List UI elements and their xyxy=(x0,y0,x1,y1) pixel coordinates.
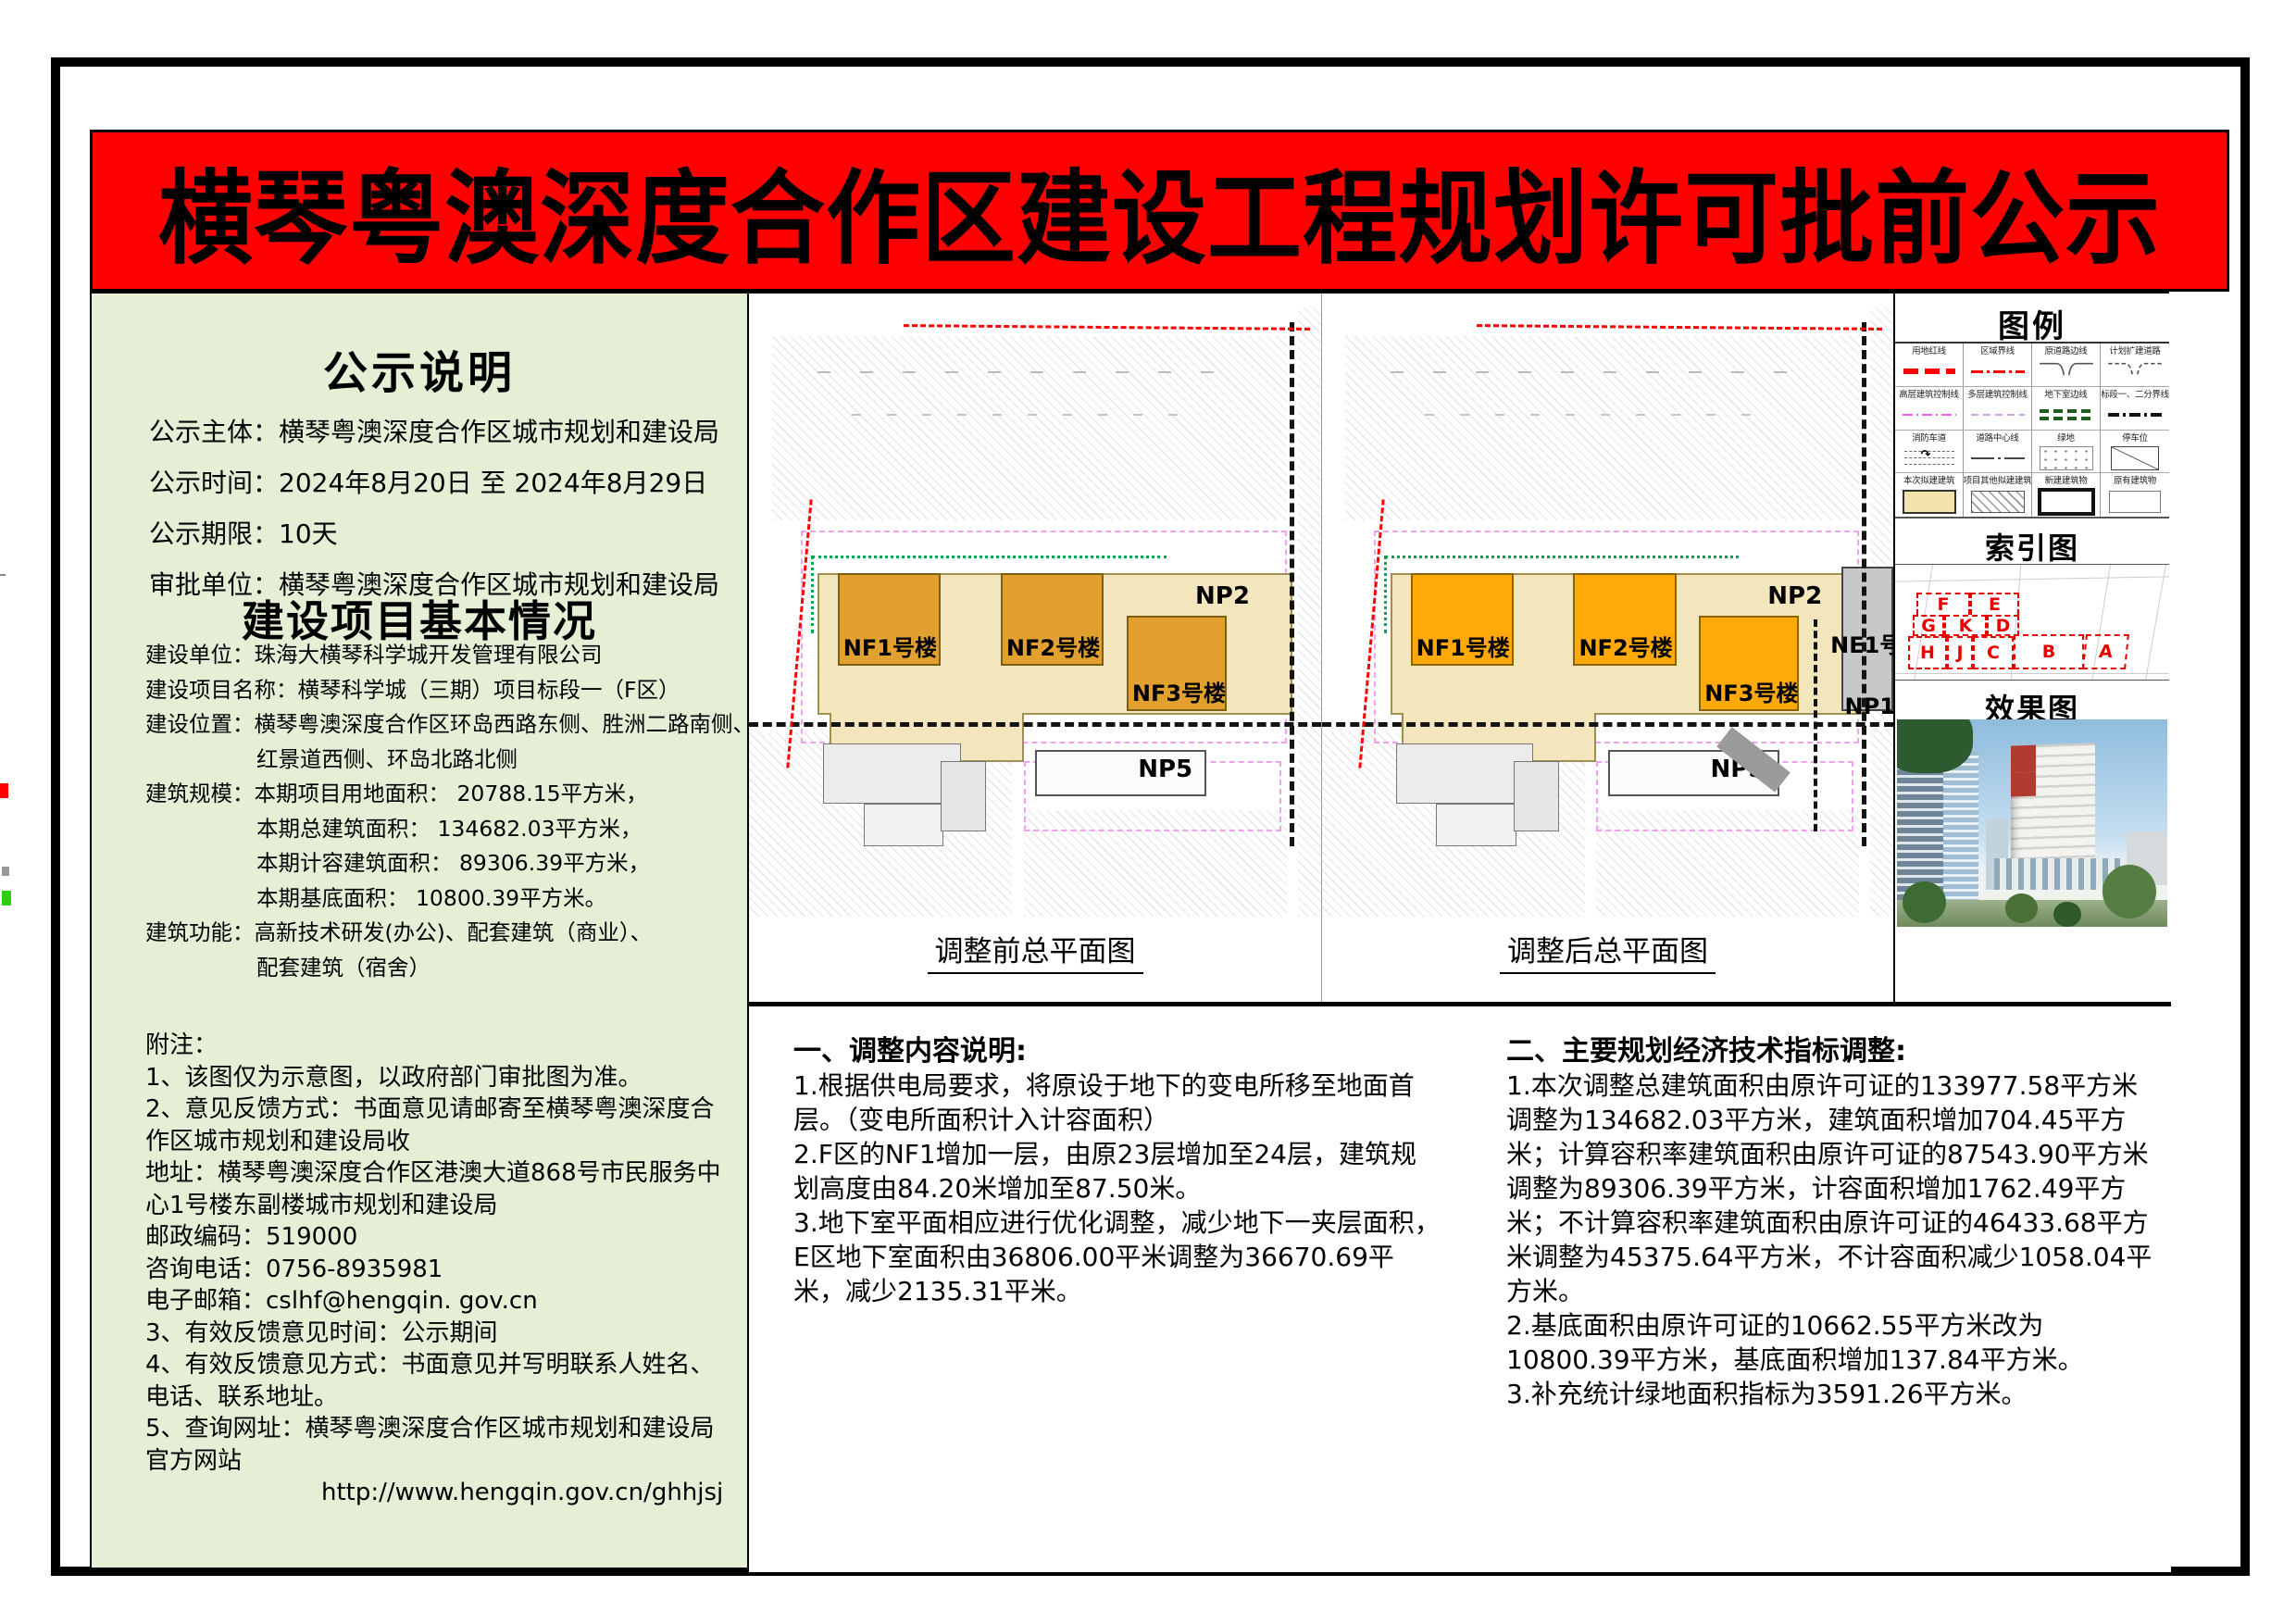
tower-label: NF1号楼 xyxy=(843,630,937,662)
magenta-dashdot-symbol xyxy=(1903,414,1956,417)
plan-caption-after: 调整后总平面图 xyxy=(1322,928,1893,969)
adjustment-paragraph: 3.地下室平面相应进行优化调整，减少地下一夹层面积，E区地下室面积由36806.… xyxy=(793,1206,1441,1308)
new-building-symbol xyxy=(2038,488,2095,516)
parcel-A: A xyxy=(2082,634,2129,669)
legend-item: 用地红线 xyxy=(1895,344,1964,387)
parcel-G: G xyxy=(1913,615,1944,636)
street-boundary-line xyxy=(1814,619,1817,832)
notice-row-value: 2024年8月20日 至 2024年8月29日 xyxy=(279,468,707,498)
render-red-accent xyxy=(2011,771,2036,796)
parcel-B: B xyxy=(2014,634,2084,669)
proposed-building-symbol xyxy=(1903,490,1956,514)
hatch-area xyxy=(772,336,1287,520)
project-line: 本期总建筑面积： 134682.03平方米， xyxy=(145,812,743,847)
existing-building xyxy=(864,804,944,846)
adjustment-paragraph: 1.根据供电局要求，将原设于地下的变电所移至地面首层。（变电所面积计入计容面积） xyxy=(793,1068,1441,1137)
other-proposed-symbol xyxy=(1971,491,2025,513)
footnote: 邮政编码：519000 xyxy=(145,1221,727,1254)
project-line: 建设项目名称：横琴科学城（三期）项目标段一（F区） xyxy=(145,673,743,708)
parcel-E: E xyxy=(1970,593,2019,615)
annotation-marks xyxy=(852,414,1195,416)
street-boundary-line xyxy=(1862,322,1866,846)
street-boundary-line xyxy=(749,722,1321,727)
legend-item: 标段一、二分界线 xyxy=(2101,387,2169,431)
render-photo xyxy=(1897,719,2167,927)
tower-label: NF1号楼 xyxy=(1416,630,1510,662)
render-red-accent xyxy=(2011,745,2036,773)
parcel-D: D xyxy=(1987,615,2019,636)
legend-item: 道路中心线 xyxy=(1964,431,2032,474)
notice-row-label: 公示时间： xyxy=(149,468,279,498)
site-plans: NF1号楼 NF2号楼 NF3号楼 NP2 NP5 调整前总平面图 xyxy=(749,294,1895,1002)
page-title: 横琴粤澳深度合作区建设工程规划许可批前公示 xyxy=(158,137,2161,284)
tower-nf1: NF1号楼 xyxy=(838,573,941,665)
scan-mark-red xyxy=(0,783,8,798)
footnote: 4、有效反馈意见方式：书面意见并写明联系人姓名、电话、联系地址。 xyxy=(145,1349,727,1413)
notice-section-title: 公示说明 xyxy=(92,336,747,401)
parcel-F: F xyxy=(1916,593,1970,615)
building-label-np2: NP2 xyxy=(1767,582,1822,610)
red-dashdot-symbol xyxy=(1971,370,2025,373)
parcel-J: J xyxy=(1947,636,1973,669)
existing-building xyxy=(1514,761,1559,832)
legend-item: 地下室边线 xyxy=(2032,387,2101,431)
project-line: 建设位置：横琴粤澳深度合作区环岛西路东侧、胜洲二路南侧、 xyxy=(145,707,743,743)
index-road xyxy=(1895,576,2169,581)
annotation-marks xyxy=(1391,371,1802,373)
project-line: 配套建筑（宿舍） xyxy=(145,951,743,986)
legend-title: 图例 xyxy=(1895,301,2169,346)
legend-item: 消防车道↷ xyxy=(1895,431,1964,474)
legend-item: 新建建筑物 xyxy=(2032,473,2101,517)
adjustment-notes: 一、调整内容说明: 1.根据供电局要求，将原设于地下的变电所移至地面首层。（变电… xyxy=(793,1034,1441,1308)
road-edge-symbol xyxy=(2040,361,2093,381)
legend-item: 多层建筑控制线 xyxy=(1964,387,2032,431)
notice-row: 公示期限：10天 xyxy=(149,508,738,559)
green-setback-line xyxy=(812,556,1167,558)
plan-caption-before: 调整前总平面图 xyxy=(749,928,1321,969)
red-dash-symbol xyxy=(1903,369,1955,374)
scan-mark-green xyxy=(2,891,11,906)
legend-item: 停车位 xyxy=(2101,431,2169,474)
adjustment-paragraph: 2.F区的NF1增加一层，由原23层增加至24层，建筑规划高度由84.20米增加… xyxy=(793,1137,1441,1206)
green-setback-line xyxy=(811,556,814,633)
project-line: 本期基底面积： 10800.39平方米。 xyxy=(145,881,743,917)
site-plan-before: NF1号楼 NF2号楼 NF3号楼 NP2 NP5 调整前总平面图 xyxy=(749,294,1322,1002)
render-glass-tower xyxy=(1943,751,1978,910)
purple-dash-symbol xyxy=(1971,414,2025,416)
building-label-np1: NP1 xyxy=(1845,693,1895,719)
indicator-paragraph: 2.基底面积由原许可证的10662.55平方米改为10800.39平方米，基底面… xyxy=(1506,1308,2160,1377)
existing-building xyxy=(1436,804,1516,846)
notice-row: 公示主体：横琴粤澳深度合作区城市规划和建设局 xyxy=(149,406,738,457)
street-boundary-line xyxy=(1322,722,1893,727)
centerline-symbol xyxy=(1971,457,2025,459)
footnote: 2、意见反馈方式：书面意见请邮寄至横琴粤澳深度合作区城市规划和建设局收 xyxy=(145,1093,727,1157)
green-dash-symbol xyxy=(2040,409,2093,420)
red-property-line xyxy=(1477,324,1882,331)
tower-nf3: NF3号楼 xyxy=(1699,616,1799,711)
footnote-url: http://www.hengqin.gov.cn/ghhjsj xyxy=(145,1477,727,1509)
legend-item: 高层建筑控制线 xyxy=(1895,387,1964,431)
notice-row-value: 10天 xyxy=(279,518,338,549)
existing-building-symbol xyxy=(2109,491,2161,513)
green-setback-line xyxy=(1384,556,1387,633)
tower-label: NF2号楼 xyxy=(1578,630,1672,662)
tower-label: NF3号楼 xyxy=(1704,675,1798,707)
parcel-H: H xyxy=(1908,636,1947,669)
notice-row-label: 公示主体： xyxy=(149,417,279,447)
indicator-notes-title: 二、主要规划经济技术指标调整: xyxy=(1506,1034,2160,1068)
adjustment-notes-title: 一、调整内容说明: xyxy=(793,1034,1441,1068)
legend-item: 原有建筑物 xyxy=(2101,473,2169,517)
indicator-notes: 二、主要规划经济技术指标调整: 1.本次调整总建筑面积由原许可证的133977.… xyxy=(1506,1034,2160,1411)
render-tree xyxy=(1903,881,1946,923)
footnote: 3、有效反馈意见时间：公示期间 xyxy=(145,1318,727,1350)
project-line: 红景道西侧、环岛北路北侧 xyxy=(145,743,743,778)
notice-row-value: 横琴粤澳深度合作区城市规划和建设局 xyxy=(279,417,719,447)
footnote: 地址：横琴粤澳深度合作区港澳大道868号市民服务中心1号楼东副楼城市规划和建设局 xyxy=(145,1157,727,1221)
footnote-email: 电子邮箱：cslhf@hengqin. gov.cn xyxy=(145,1285,727,1318)
notice-row: 公示时间：2024年8月20日 至 2024年8月29日 xyxy=(149,457,738,508)
existing-building xyxy=(941,761,986,832)
render-tree xyxy=(2103,865,2156,918)
fire-lane-symbol: ↷ xyxy=(1904,449,1954,468)
tower-nf1: NF1号楼 xyxy=(1411,573,1514,665)
legend-item: 计划扩建道路 xyxy=(2101,344,2169,387)
tower-nf2: NF2号楼 xyxy=(1001,573,1104,665)
render-main-tower xyxy=(2011,743,2095,866)
index-map-title: 索引图 xyxy=(1895,525,2169,568)
tower-nf3: NF3号楼 xyxy=(1127,616,1227,711)
right-column: 图例 用地红线 区域界线 原道路边线 计划扩建道路 高层建筑控制线 多层建筑控制… xyxy=(1895,294,2169,1002)
index-map: F E G K D H J C B A xyxy=(1895,564,2169,681)
green-setback-line xyxy=(1385,556,1740,558)
project-line: 建筑功能：高新技术研发(办公)、配套建筑（商业）、 xyxy=(145,916,743,951)
parking-symbol xyxy=(2111,446,2159,470)
footnote: 1、该图仅为示意图，以政府部门审批图为准。 xyxy=(145,1062,727,1094)
footnotes: 附注： 1、该图仅为示意图，以政府部门审批图为准。 2、意见反馈方式：书面意见请… xyxy=(145,1030,727,1509)
building-label-np5: NP5 xyxy=(1138,756,1192,783)
project-line: 建设单位：珠海大横琴科学城开发管理有限公司 xyxy=(145,638,743,673)
parcel-C: C xyxy=(1973,636,2014,669)
street-boundary-line xyxy=(1290,322,1294,846)
scan-mark-tick xyxy=(0,574,6,576)
planned-road-symbol xyxy=(2108,361,2162,381)
notice-poster: 横琴粤澳深度合作区建设工程规划许可批前公示 公示说明 公示主体：横琴粤澳深度合作… xyxy=(0,0,2296,1624)
notice-row-label: 公示期限： xyxy=(149,518,279,549)
tower-label: NF3号楼 xyxy=(1132,675,1226,707)
green-space-symbol xyxy=(2040,446,2093,470)
notice-rows: 公示主体：横琴粤澳深度合作区城市规划和建设局 公示时间：2024年8月20日 至… xyxy=(149,406,738,610)
footnote: 5、查询网址：横琴粤澳深度合作区城市规划和建设局官方网站 xyxy=(145,1413,727,1477)
project-info: 建设单位：珠海大横琴科学城开发管理有限公司 建设项目名称：横琴科学城（三期）项目… xyxy=(145,638,743,985)
info-panel: 公示说明 公示主体：横琴粤澳深度合作区城市规划和建设局 公示时间：2024年8月… xyxy=(92,294,749,1568)
hatch-area xyxy=(1345,336,1859,520)
scan-mark-gray xyxy=(2,867,9,876)
legend-item: 区域界线 xyxy=(1964,344,2032,387)
footnotes-title: 附注： xyxy=(145,1030,727,1062)
hatch-area xyxy=(1298,307,1321,917)
parcel-K: K xyxy=(1944,615,1987,636)
footnote: 咨询电话：0756-8935981 xyxy=(145,1254,727,1286)
content-table: 公示说明 公示主体：横琴粤澳深度合作区城市规划和建设局 公示时间：2024年8月… xyxy=(90,292,2169,1569)
notes-area: 一、调整内容说明: 1.根据供电局要求，将原设于地下的变电所移至地面首层。（变电… xyxy=(749,1002,2171,1572)
project-line: 建筑规模：本期项目用地面积： 20788.15平方米， xyxy=(145,777,743,812)
index-road xyxy=(2143,564,2168,681)
index-road xyxy=(1895,673,2169,674)
annotation-marks xyxy=(1425,414,1767,416)
building-label-np2: NP2 xyxy=(1195,582,1250,610)
legend-item: 原道路边线 xyxy=(2032,344,2101,387)
tower-label: NF2号楼 xyxy=(1006,630,1100,662)
indicator-paragraph: 3.补充统计绿地面积指标为3591.26平方米。 xyxy=(1506,1377,2160,1411)
annotation-marks xyxy=(817,371,1229,373)
legend-item: 绿地 xyxy=(2032,431,2101,474)
render-tree xyxy=(2053,902,2080,927)
legend-grid: 用地红线 区域界线 原道路边线 计划扩建道路 高层建筑控制线 多层建筑控制线 地… xyxy=(1895,342,2169,518)
red-property-line xyxy=(904,324,1310,331)
black-dashdot-symbol xyxy=(2108,413,2162,417)
tower-nf2: NF2号楼 xyxy=(1573,573,1676,665)
legend-item: 本次拟建建筑 xyxy=(1895,473,1964,517)
indicator-paragraph: 1.本次调整总建筑面积由原许可证的133977.58平方米调整为134682.0… xyxy=(1506,1068,2160,1308)
legend-item: 项目其他拟建建筑 xyxy=(1964,473,2032,517)
render-tree xyxy=(2005,893,2038,922)
site-plan-after: NF1号楼 NF2号楼 NF3号楼 NP2 NE1号楼 NP1 NP5 xyxy=(1322,294,1895,1002)
project-line: 本期计容建筑面积： 89306.39平方米， xyxy=(145,846,743,881)
title-banner: 横琴粤澳深度合作区建设工程规划许可批前公示 xyxy=(90,130,2229,292)
